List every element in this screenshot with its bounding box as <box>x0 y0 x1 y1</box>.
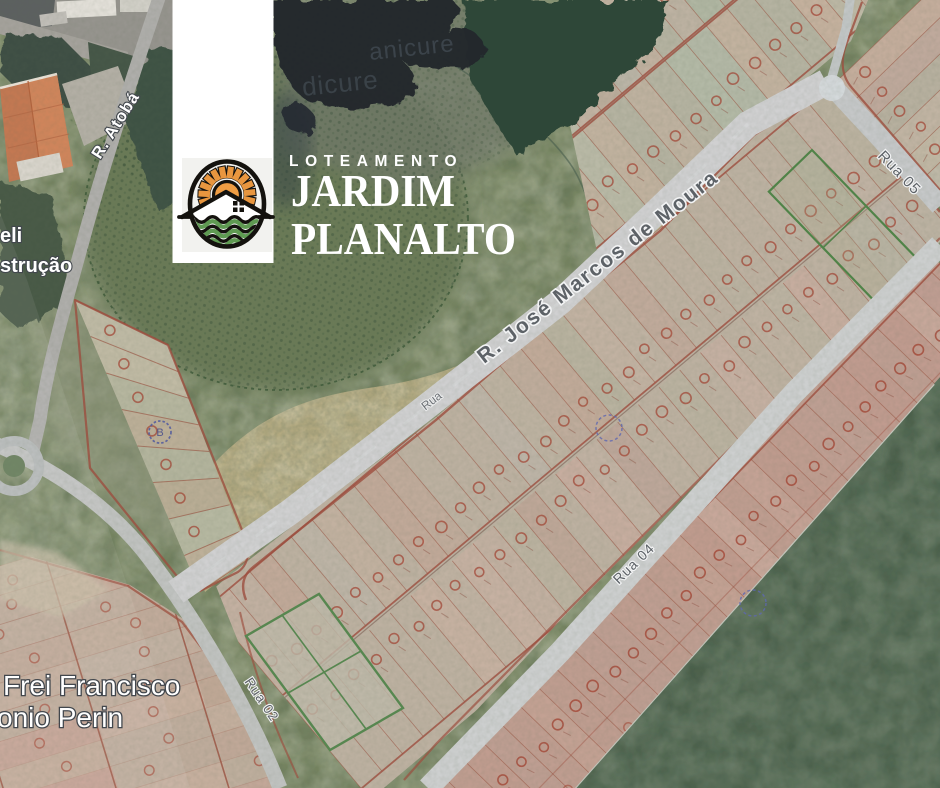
svg-text:JARDIM: JARDIM <box>291 165 455 216</box>
svg-text:Frei Francisco: Frei Francisco <box>3 670 180 701</box>
svg-text:PLANALTO: PLANALTO <box>291 213 516 264</box>
svg-text:eli: eli <box>0 225 22 247</box>
svg-text:strução: strução <box>0 255 72 277</box>
svg-text:onio Perin: onio Perin <box>0 702 123 733</box>
